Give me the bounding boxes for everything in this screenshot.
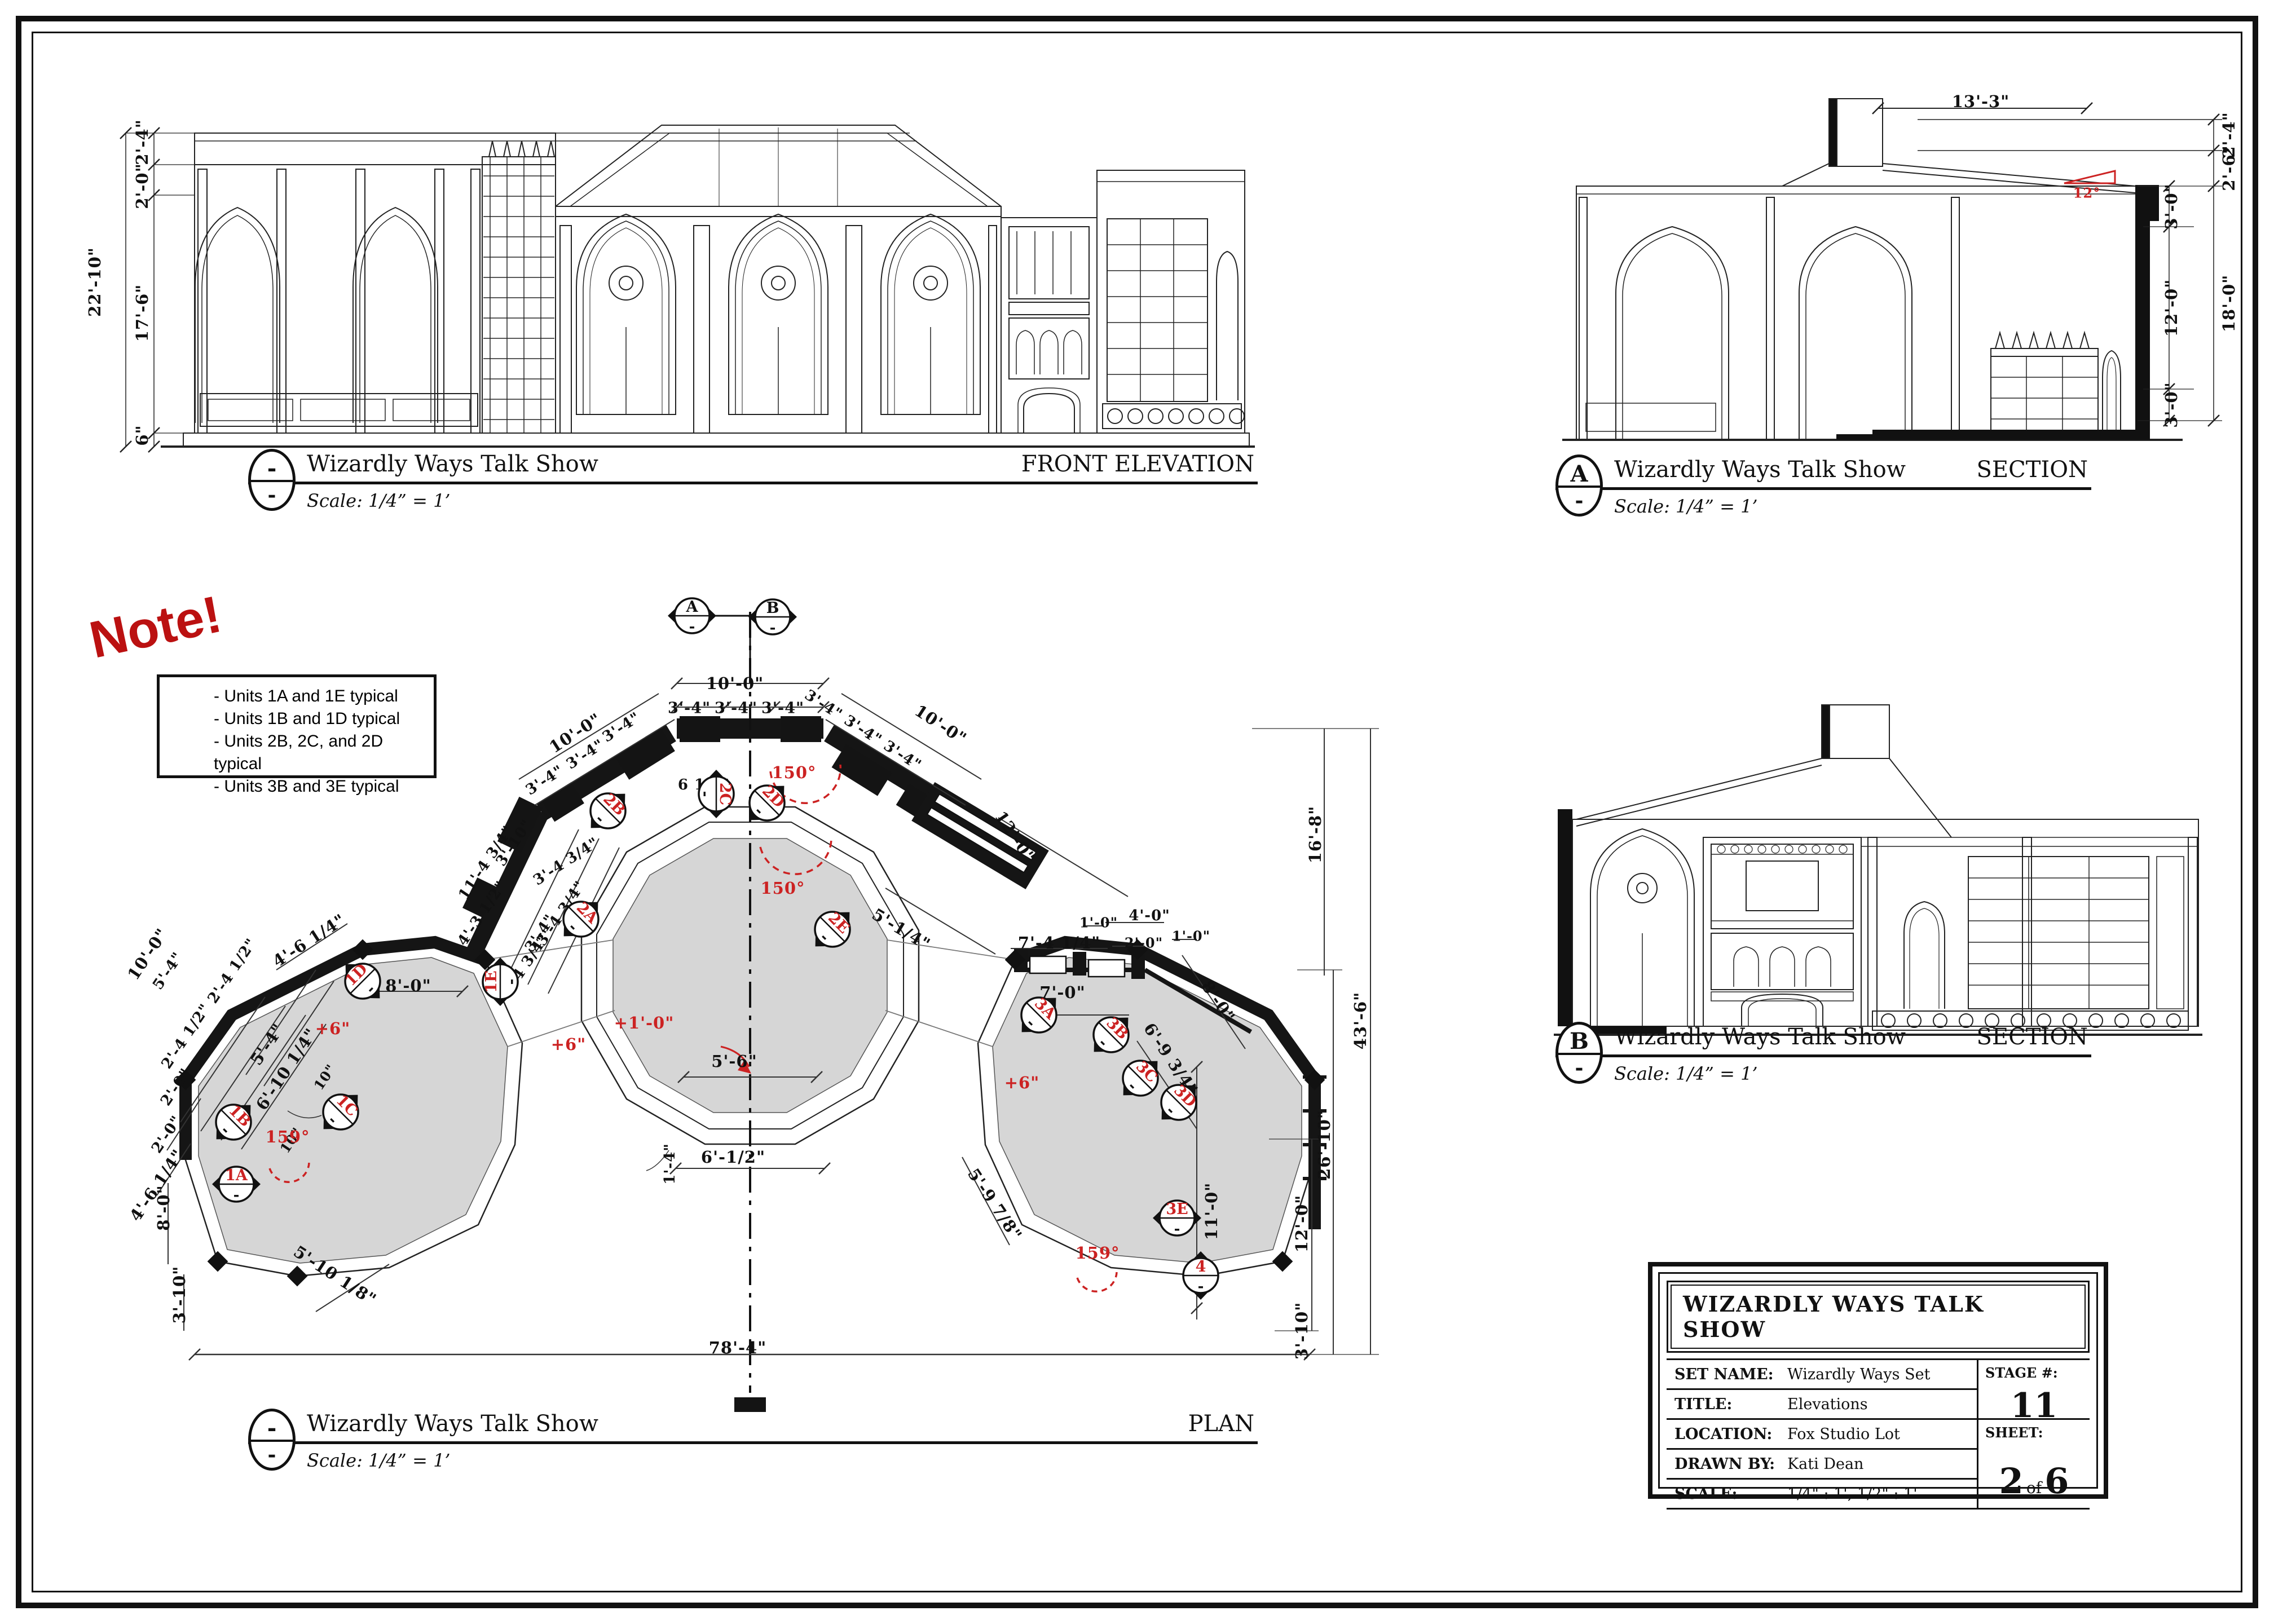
bubble-top: B [1558, 1028, 1600, 1054]
dimension-label: 3'-4" [715, 700, 757, 717]
plan-marker-2C: 2C- [690, 768, 742, 820]
drawing-name: PLAN [1188, 1411, 1254, 1437]
dimension-label: 2'-4" [133, 119, 152, 165]
bubble-bottom: - [251, 1443, 293, 1467]
title-block-row-setname: SET NAME:Wizardly Ways Set [1667, 1360, 1977, 1390]
dimension-label: 3'-4" [761, 700, 804, 717]
svg-text:-: - [233, 1187, 240, 1204]
drawing-scale: Scale: 1/4” = 1’ [248, 484, 1258, 511]
plan-marker-1C: 1C- [315, 1086, 367, 1138]
svg-text:B: B [766, 599, 779, 617]
dimension-label: 1'-0" [1079, 915, 1118, 931]
dimension-label: 3'-10" [1292, 1302, 1311, 1360]
project-name: Wizardly Ways Talk Show [307, 451, 598, 477]
dimension-label: 7'-4 1/4" [1018, 933, 1100, 952]
dimension-label: +1'-0" [614, 1013, 675, 1032]
dimension-label: 78'-4" [709, 1338, 767, 1357]
section-b-label: B - Wizardly Ways Talk Show SECTION Scal… [1555, 1024, 2091, 1084]
dimension-label: 43'-6" [1351, 992, 1370, 1050]
dimension-label: +6" [551, 1035, 587, 1054]
project-name: Wizardly Ways Talk Show [307, 1411, 598, 1437]
dimension-label: 159° [265, 1127, 310, 1146]
dimension-label: 3'-0" [2162, 183, 2181, 229]
dimension-label: +6" [315, 1019, 351, 1038]
front-elevation-label: - - Wizardly Ways Talk Show FRONT ELEVAT… [248, 451, 1258, 511]
svg-text:A: A [686, 598, 699, 616]
drawing-name: FRONT ELEVATION [1021, 451, 1254, 477]
svg-text:1E: 1E [483, 970, 500, 992]
title-block: WIZARDLY WAYS TALK SHOW SET NAME:Wizardl… [1648, 1262, 2108, 1499]
dimension-label: 3'-10" [170, 1266, 189, 1324]
drawing-scale: Scale: 1/4” = 1’ [1555, 490, 2091, 517]
project-name: Wizardly Ways Talk Show [1614, 457, 1906, 483]
bubble-divider [250, 1440, 294, 1442]
dimension-label: 8'-0" [154, 1185, 173, 1230]
sheet-number: 2 of 6 [1978, 1460, 2090, 1502]
svg-text:-: - [1174, 1221, 1180, 1238]
note-list: - Units 1A and 1E typical - Units 1B and… [214, 685, 428, 798]
title-block-sheet: SHEET: 2 of 6 [1977, 1420, 2090, 1510]
svg-text:2C: 2C [716, 783, 734, 805]
drawing-sheet: 2'-4"2'-0"22'-10"17'-6"6"13'-3"2'-4"2'-6… [0, 0, 2274, 1624]
dimension-label: 2'-4 1/2" [205, 935, 261, 1007]
dimension-label: 3'-4" [600, 709, 644, 745]
svg-text:-: - [689, 619, 695, 636]
dimension-label: 2'-0" [1125, 935, 1163, 951]
dimension-label: 8'-0" [385, 976, 431, 995]
svg-text:-: - [697, 791, 713, 797]
dimension-label: 5'-10 1/8" [290, 1242, 380, 1309]
dimension-label: 2'-0" [148, 1113, 186, 1157]
dimension-label: 159° [1075, 1243, 1120, 1263]
svg-text:1A: 1A [225, 1167, 248, 1184]
dimension-label: 150° [760, 879, 805, 898]
dimension-label: 2'-4 1/2" [158, 1001, 214, 1072]
section-a-bubble: A - [1555, 454, 1603, 517]
bubble-top: - [251, 1415, 293, 1441]
drawing-name: SECTION [1977, 457, 2088, 483]
plan-marker-2E: 2E- [807, 903, 858, 955]
plan-marker-4: 4- [1175, 1250, 1227, 1301]
plan-marker-B: B- [747, 591, 799, 643]
dimension-label: 10'-0" [706, 674, 764, 693]
bubble-bottom: - [1558, 489, 1600, 513]
note-item: - Units 2B, 2C, and 2D typical [214, 730, 428, 775]
dimension-label: 11'-0" [1202, 1182, 1221, 1241]
plan-bubble: - - [248, 1409, 296, 1471]
dimension-label: 5'-6" [711, 1052, 757, 1071]
title-block-stage: STAGE #: 11 [1977, 1360, 2090, 1420]
svg-text:-: - [503, 979, 520, 985]
dimension-label: 12° [2073, 185, 2100, 201]
bubble-divider [1557, 1053, 1601, 1055]
dimension-label: 13'-3" [1952, 92, 2010, 111]
dimension-label: 18'-0" [2219, 275, 2238, 333]
dimension-label: 2'-0" [157, 1065, 195, 1109]
dimension-label: 10'-0" [911, 701, 971, 748]
dimension-label: 3'-4" [880, 737, 924, 774]
plan-marker-2A: 2A- [555, 893, 607, 945]
svg-text:-: - [1198, 1278, 1204, 1295]
section-b-bubble: B - [1555, 1022, 1603, 1084]
dimension-label: 5'-1/4" [869, 904, 933, 954]
dimension-label: 6" [133, 425, 152, 445]
dimension-label: 3'-4" [801, 686, 845, 723]
bubble-bottom: - [251, 483, 293, 507]
dimension-label: 8'-0" [1197, 977, 1239, 1026]
title-block-row-location: LOCATION:Fox Studio Lot [1667, 1420, 1977, 1450]
dimension-label: 12'-0" [2162, 279, 2181, 337]
plan-marker-1B: 1B- [208, 1096, 259, 1148]
section-a-label: A - Wizardly Ways Talk Show SECTION Scal… [1555, 457, 2091, 517]
bubble-top: - [251, 455, 293, 482]
dimension-label: 1'-0" [1172, 928, 1210, 945]
dimension-label: 22'-10" [85, 247, 104, 317]
plan-marker-3E: 3E- [1151, 1192, 1203, 1244]
plan-label: - - Wizardly Ways Talk Show PLAN Scale: … [248, 1411, 1258, 1471]
plan-marker-1D: 1D- [337, 955, 389, 1007]
dimension-label: 2'-6" [2219, 145, 2238, 191]
plan-marker-1A: 1A- [210, 1158, 262, 1210]
dimension-label: 5'-9 7/8" [964, 1165, 1026, 1244]
dimension-label: +6" [1004, 1073, 1040, 1092]
title-block-row-title: TITLE:Elevations [1667, 1390, 1977, 1420]
note-item: - Units 1A and 1E typical [214, 685, 428, 708]
dimension-label: 3'-4 3/4" [530, 834, 602, 889]
dimension-label: 12'-0" [991, 807, 1039, 866]
project-name: Wizardly Ways Talk Show [1614, 1024, 1906, 1050]
bubble-top: A [1558, 461, 1600, 487]
dimension-label: 3'-4" [523, 762, 567, 798]
dimension-label: 2'-0" [133, 163, 152, 209]
dimension-label: 16'-8" [1306, 806, 1325, 864]
bubble-bottom: - [1558, 1056, 1600, 1080]
title-block-header: WIZARDLY WAYS TALK SHOW [1667, 1281, 2090, 1353]
plan-marker-3A: 3A- [1013, 989, 1065, 1041]
dimension-label: 3'-4" [668, 700, 711, 717]
title-block-row-scale: SCALE:1/4" : 1', 1/2" : 1' [1667, 1480, 1977, 1510]
plan-marker-2B: 2B- [582, 785, 634, 837]
dimension-label: 3'-0" [2162, 382, 2181, 427]
drawing-name: SECTION [1977, 1024, 2088, 1050]
note-item: - Units 3B and 3E typical [214, 775, 428, 798]
note-box: - Units 1A and 1E typical - Units 1B and… [157, 674, 437, 778]
note-item: - Units 1B and 1D typical [214, 708, 428, 730]
svg-text:3E: 3E [1166, 1201, 1188, 1218]
dimension-label: 3'-4" [841, 712, 885, 748]
dimension-label: 17'-6" [133, 284, 152, 342]
dimension-label: 1'-4" [662, 1143, 678, 1184]
plan-marker-A: A- [666, 590, 718, 642]
plan-marker-3D: 3D- [1153, 1076, 1205, 1128]
front-elevation-bubble: - - [248, 449, 296, 511]
svg-text:-: - [770, 620, 776, 637]
dimension-label: 6'-1/2" [701, 1148, 765, 1167]
plan-marker-2D: 2D- [741, 777, 793, 829]
drawing-scale: Scale: 1/4” = 1’ [1555, 1057, 2091, 1084]
plan-marker-1E: 1E- [474, 956, 526, 1008]
svg-text:4: 4 [1196, 1258, 1206, 1276]
drawing-scale: Scale: 1/4” = 1’ [248, 1444, 1258, 1471]
dimension-label: 4'-0" [1129, 907, 1170, 924]
title-block-row-drawnby: DRAWN BY:Kati Dean [1667, 1450, 1977, 1480]
bubble-divider [1557, 486, 1601, 488]
dimension-label: 12'-0" [1292, 1195, 1311, 1253]
bubble-divider [250, 480, 294, 482]
dimension-label: 26'-10" [1315, 1110, 1334, 1180]
